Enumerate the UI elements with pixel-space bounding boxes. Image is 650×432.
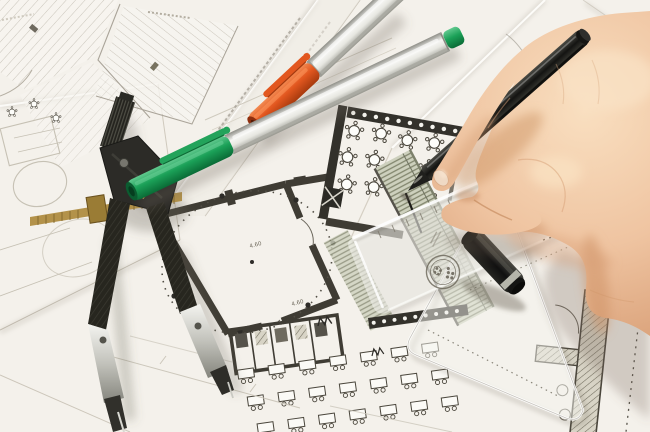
leg-screw <box>195 323 202 330</box>
hinge-screw <box>120 159 129 168</box>
leg-screw <box>100 337 107 344</box>
web-shade <box>456 190 480 202</box>
photo-architect-workspace: 4.60 4.60 <box>0 0 650 432</box>
elevator-box <box>322 187 344 209</box>
rod-nut <box>86 195 108 223</box>
scene-canvas: 4.60 4.60 <box>0 0 650 432</box>
